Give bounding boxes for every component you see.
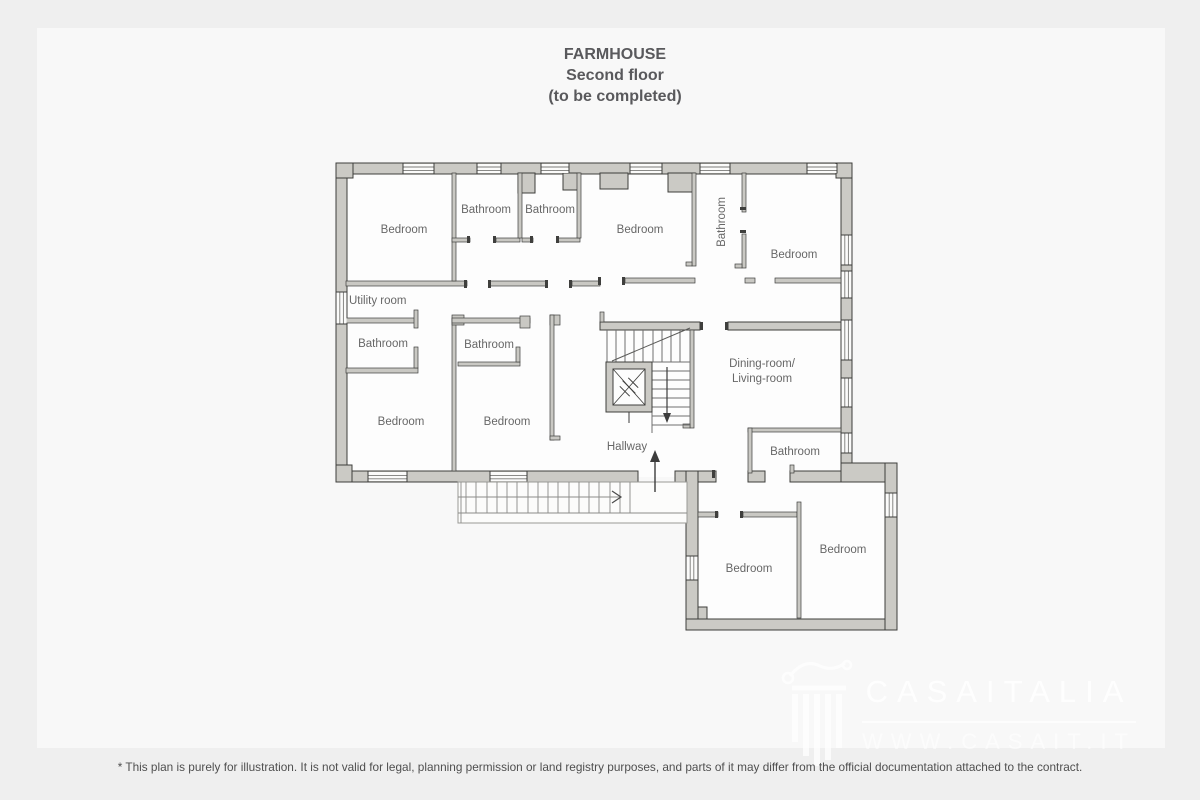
room-label-bathroom-6: Bathroom [770,446,820,458]
room-label-bathroom-5: Bathroom [464,339,514,351]
room-label-bathroom-3: Bathroom [716,197,728,247]
room-label-bedroom-4: Bedroom [378,416,425,428]
room-label-bathroom-1: Bathroom [461,204,511,216]
dining-label-line1: Dining-room/ [729,357,795,372]
room-label-bedroom-6: Bedroom [726,563,773,575]
watermark-url: WWW.CASAIT.IT [860,729,1138,755]
room-label-bedroom-2: Bedroom [617,224,664,236]
watermark-logo-icon [783,661,851,766]
room-label-dining-living: Dining-room/ Living-room [729,357,795,387]
room-label-utility-room: Utility room [349,295,407,307]
room-label-bedroom-7: Bedroom [820,544,867,556]
disclaimer-text: * This plan is purely for illustration. … [0,760,1200,774]
room-label-hallway: Hallway [607,441,647,453]
room-label-bedroom-1: Bedroom [381,224,428,236]
room-label-bathroom-2: Bathroom [525,204,575,216]
room-label-bedroom-5: Bedroom [484,416,531,428]
watermark-divider [862,721,1136,723]
elevator [606,362,652,412]
dining-label-line2: Living-room [729,372,795,387]
room-label-bathroom-4: Bathroom [358,338,408,350]
external-staircase [458,482,687,523]
watermark-brand: CASAITALIA [860,674,1138,710]
room-label-bedroom-3: Bedroom [771,249,818,261]
